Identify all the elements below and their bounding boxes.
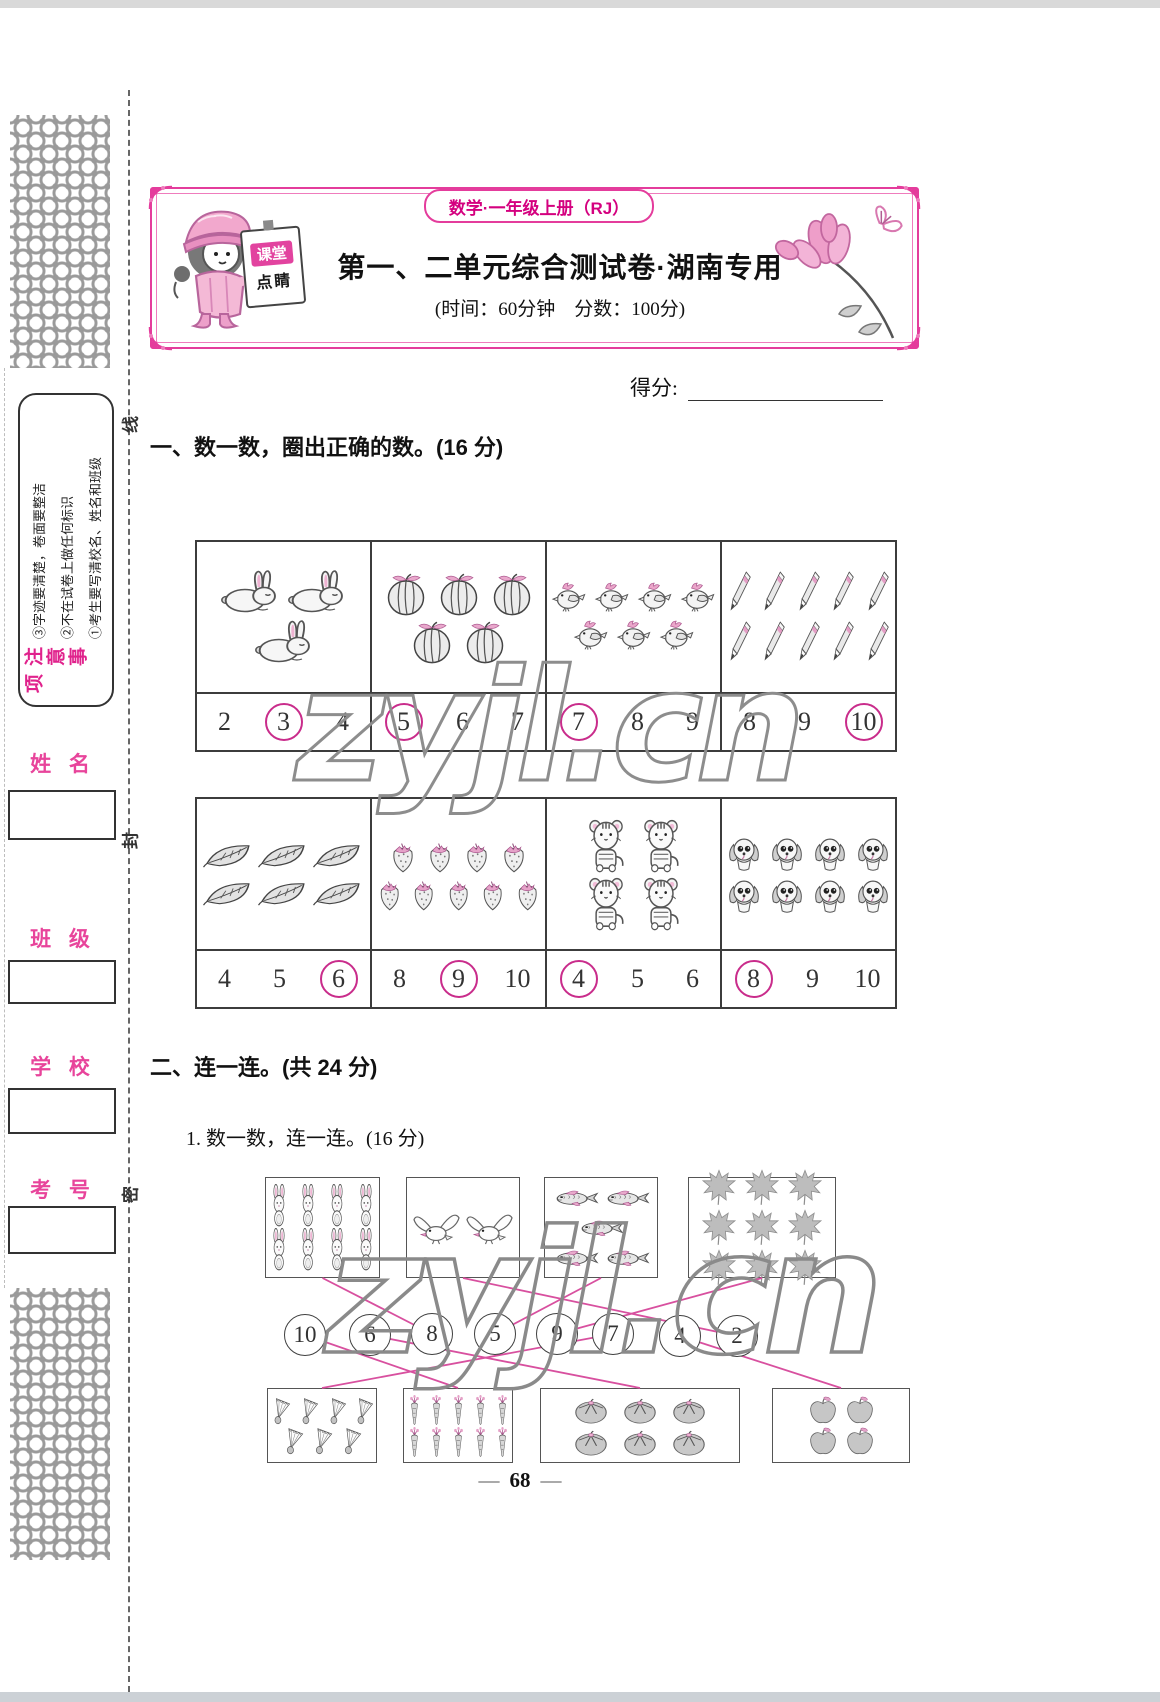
pencil-icon [793, 617, 824, 667]
maple-icon [742, 1208, 782, 1248]
pencil-icon [827, 617, 858, 667]
seal-char-mi: 密 [117, 1180, 142, 1210]
q1-grid-row1: 2345677898910 [195, 540, 897, 752]
tiger-icon [580, 816, 632, 874]
persimmon-icon [666, 1394, 712, 1426]
carrot-icon [427, 1426, 446, 1458]
connection-line [680, 1336, 841, 1388]
page-footer: —68— [420, 1468, 620, 1493]
strawberry-icon-group [374, 836, 543, 912]
watermelon-icon [487, 569, 537, 617]
persimmon-icon [568, 1426, 614, 1458]
exam-number-field-box[interactable] [8, 1206, 116, 1254]
apple-icon [806, 1426, 840, 1457]
number-circle-6: 6 [349, 1314, 391, 1356]
apple-icon [843, 1426, 877, 1457]
q2-heading: 二、连一连。(共 24 分) [150, 1050, 377, 1082]
maple-icon [699, 1248, 739, 1288]
pencil-icon [827, 567, 858, 617]
count-box-maple [688, 1177, 836, 1278]
bunny-icon [324, 1184, 350, 1228]
apple-icon-group [773, 1395, 909, 1457]
bird2-icon [412, 1205, 462, 1251]
maple-icon [785, 1208, 825, 1248]
count-box-apple [772, 1388, 910, 1463]
persimmon-icon [617, 1394, 663, 1426]
leaf-icon [258, 836, 310, 874]
pencil-icon [758, 567, 789, 617]
apple-icon [806, 1395, 840, 1426]
tiger-icon-group [549, 816, 718, 932]
q1r1-picture-cell-rabbit [196, 541, 371, 693]
bird2-icon [465, 1205, 515, 1251]
circled-answer: 5 [385, 703, 423, 741]
carrot-icon [471, 1426, 490, 1458]
circled-answer: 10 [845, 703, 883, 741]
pencil-icon [724, 617, 755, 667]
number-option: 4 [210, 964, 240, 994]
strawberry-icon [374, 874, 405, 912]
circled-answer: 3 [265, 703, 303, 741]
page-number: 68 [510, 1468, 531, 1492]
shuttlecock-icon [309, 1426, 335, 1456]
maple-icon [742, 1168, 782, 1208]
pencil-icon [862, 567, 893, 617]
exam-notice-box: 注意事项 ①考生要写清校名、姓名和班级 ②不在试卷上做任何标识 ③字迹要清楚，卷… [18, 393, 114, 707]
maple-icon [699, 1208, 739, 1248]
dog-icon [853, 874, 893, 916]
persimmon-icon-group [541, 1394, 739, 1458]
carrot-icon [405, 1426, 424, 1458]
footer-dash: — [469, 1468, 510, 1492]
circled-answer: 9 [440, 960, 478, 998]
strawberry-icon [497, 836, 531, 874]
shuttlecock-icon [296, 1396, 321, 1426]
page-top-edge [0, 0, 1160, 8]
leaf-icon [313, 874, 365, 912]
number-option: 9 [790, 707, 820, 737]
q1r2-options-cell-tiger: 456 [546, 950, 721, 1008]
bunny-icon [353, 1184, 379, 1228]
q1r1-options-cell-bird: 789 [546, 693, 721, 751]
bunny-icon-group [266, 1184, 379, 1272]
tiger-icon [635, 874, 687, 932]
school-field-box[interactable] [8, 1088, 116, 1134]
leaf-icon [313, 836, 365, 874]
rabbit-icon-group [199, 567, 368, 667]
maple-icon [785, 1248, 825, 1288]
dog-icon [767, 832, 807, 874]
q1r1-picture-cell-watermelon [371, 541, 546, 693]
number-option: 10 [503, 964, 533, 994]
leaf-icon-group [199, 836, 368, 912]
shuttlecock-icon [280, 1426, 306, 1456]
q1r1-options-cell-watermelon: 567 [371, 693, 546, 751]
number-option: 6 [678, 964, 708, 994]
pencil-icon [793, 567, 824, 617]
pencil-icon [862, 617, 893, 667]
bird-icon [678, 579, 718, 617]
bird-icon [614, 617, 654, 655]
persimmon-icon [617, 1426, 663, 1458]
school-field-label: 学 校 [18, 1051, 108, 1081]
maple-icon [742, 1248, 782, 1288]
q2-sub-heading: 1. 数一数，连一连。(16 分) [186, 1122, 424, 1151]
fish-icon [603, 1243, 651, 1273]
bunny-icon [266, 1228, 292, 1272]
pencil-icon [758, 617, 789, 667]
name-field-box[interactable] [8, 790, 116, 840]
carrot-icon-group [404, 1394, 512, 1458]
shuttlecock-icon [268, 1396, 293, 1426]
dog-icon [724, 832, 764, 874]
number-option: 6 [448, 707, 478, 737]
number-option: 8 [385, 964, 415, 994]
count-box-carrot [403, 1388, 513, 1463]
q1-grid-row2: 45689104568910 [195, 797, 897, 1009]
number-option: 5 [265, 964, 295, 994]
circled-answer: 7 [560, 703, 598, 741]
leaf-icon [203, 874, 255, 912]
strawberry-icon [423, 836, 457, 874]
bird2-icon-group [407, 1205, 519, 1251]
lattice-pattern-top [10, 115, 110, 368]
q1r1-options-cell-rabbit: 234 [196, 693, 371, 751]
apple-icon [843, 1395, 877, 1426]
class-field-label: 班 级 [18, 923, 108, 953]
notice-title: 注意事项 [24, 645, 108, 699]
carrot-icon [493, 1426, 512, 1458]
sign-board: 课堂 点睛 [240, 226, 307, 309]
q1r1-picture-cell-bird [546, 541, 721, 693]
dog-icon [810, 832, 850, 874]
persimmon-icon [568, 1394, 614, 1426]
carrot-icon [493, 1394, 512, 1426]
number-option: 7 [503, 707, 533, 737]
dog-icon-group [724, 832, 893, 916]
name-field-label: 姓 名 [18, 748, 108, 778]
pencil-icon [724, 567, 755, 617]
bunny-icon [295, 1228, 321, 1272]
strawberry-icon [512, 874, 543, 912]
watermelon-icon [407, 617, 457, 665]
bunny-icon [353, 1228, 379, 1272]
q1r2-picture-cell-leaf [196, 798, 371, 950]
maple-icon [699, 1168, 739, 1208]
leaf-icon [258, 874, 310, 912]
number-option: 2 [210, 707, 240, 737]
exam-number-field-label: 考 号 [18, 1174, 108, 1204]
sign-top-label: 课堂 [250, 240, 294, 267]
rabbit-icon [218, 567, 282, 617]
number-option: 8 [735, 707, 765, 737]
count-box-persimmon [540, 1388, 740, 1463]
notice-item-2: ②不在试卷上做任何标识 [57, 401, 76, 639]
bunny-icon [295, 1184, 321, 1228]
persimmon-icon [666, 1426, 712, 1458]
count-box-bunny [265, 1177, 380, 1278]
strawberry-icon [408, 874, 439, 912]
rabbit-icon [252, 617, 316, 667]
number-circle-10: 10 [284, 1314, 326, 1356]
q1r2-picture-cell-dog [721, 798, 896, 950]
number-circle-7: 7 [592, 1313, 634, 1355]
q1r2-picture-cell-tiger [546, 798, 721, 950]
bird-icon [549, 579, 589, 617]
number-circle-8: 8 [411, 1313, 453, 1355]
number-circle-9: 9 [536, 1313, 578, 1355]
shuttlecock-icon [351, 1396, 376, 1426]
bird-icon [657, 617, 697, 655]
seal-char-xian: 线 [117, 410, 142, 440]
carrot-icon [449, 1426, 468, 1458]
number-option: 10 [853, 964, 883, 994]
carrot-icon [405, 1394, 424, 1426]
shuttlecock-icon [338, 1426, 364, 1456]
bird-icon [571, 617, 611, 655]
score-label: 得分: [630, 372, 678, 402]
fish-icon [577, 1213, 625, 1243]
footer-dash: — [531, 1468, 572, 1492]
fish-icon [603, 1183, 651, 1213]
number-option: 4 [328, 707, 358, 737]
q1-heading: 一、数一数，圈出正确的数。(16 分) [150, 430, 503, 462]
time-score-meta: (时间：60分钟 分数：100分) [300, 294, 820, 321]
fish-icon-group [545, 1183, 657, 1273]
fish-icon [552, 1183, 600, 1213]
number-circle-5: 5 [474, 1313, 516, 1355]
strawberry-icon [477, 874, 508, 912]
page-bottom-edge [0, 1692, 1160, 1702]
number-circle-2: 2 [716, 1315, 758, 1357]
watermelon-icon [381, 569, 431, 617]
count-box-bird2 [406, 1177, 520, 1278]
circled-answer: 8 [735, 960, 773, 998]
strawberry-icon [386, 836, 420, 874]
count-box-fish [544, 1177, 658, 1278]
q1r1-picture-cell-pencil [721, 541, 896, 693]
count-box-shuttlecock [267, 1388, 377, 1463]
bird-icon [635, 579, 675, 617]
bunny-icon [324, 1228, 350, 1272]
leaf-icon [203, 836, 255, 874]
q1r2-picture-cell-strawberry [371, 798, 546, 950]
paper-title: 第一、二单元综合测试卷·湖南专用 [300, 246, 820, 286]
carrot-icon [427, 1394, 446, 1426]
dog-icon [767, 874, 807, 916]
watermelon-icon [460, 617, 510, 665]
number-option: 8 [623, 707, 653, 737]
number-option: 9 [678, 707, 708, 737]
carrot-icon [449, 1394, 468, 1426]
dog-icon [853, 832, 893, 874]
watermelon-icon-group [374, 569, 543, 665]
seal-dashed-line [128, 90, 130, 1692]
number-option: 9 [798, 964, 828, 994]
dog-icon [810, 874, 850, 916]
notice-items: ①考生要写清校名、姓名和班级 ②不在试卷上做任何标识 ③字迹要清楚，卷面要整洁 [24, 401, 108, 639]
q1r2-options-cell-leaf: 456 [196, 950, 371, 1008]
q1r2-options-cell-strawberry: 8910 [371, 950, 546, 1008]
q1r1-options-cell-pencil: 8910 [721, 693, 896, 751]
rabbit-icon [285, 567, 349, 617]
sign-bottom-label: 点睛 [255, 266, 293, 293]
edge-dashed-line [4, 368, 5, 1288]
bird-icon-group [549, 579, 718, 655]
seal-char-feng: 封 [117, 826, 142, 856]
shuttlecock-icon-group [268, 1396, 376, 1456]
bird-icon [592, 579, 632, 617]
score-blank[interactable] [688, 370, 883, 401]
tiger-icon [580, 874, 632, 932]
number-option: 5 [623, 964, 653, 994]
strawberry-icon [443, 874, 474, 912]
bunny-icon [266, 1184, 292, 1228]
tiger-icon [635, 816, 687, 874]
number-circle-4: 4 [659, 1315, 701, 1357]
notice-item-1: ①考生要写清校名、姓名和班级 [85, 401, 104, 639]
q1r2-options-cell-dog: 8910 [721, 950, 896, 1008]
circled-answer: 4 [560, 960, 598, 998]
notice-item-3: ③字迹要清楚，卷面要整洁 [29, 401, 48, 639]
class-field-box[interactable] [8, 960, 116, 1004]
maple-icon-group [689, 1168, 835, 1288]
shuttlecock-icon [324, 1396, 349, 1426]
book-badge: 数学·一年级上册（RJ） [424, 189, 654, 223]
test-paper-page: 线 封 密 注意事项 ①考生要写清校名、姓名和班级 ②不在试卷上做任何标识 ③字… [0, 0, 1160, 1702]
carrot-icon [471, 1394, 490, 1426]
circled-answer: 6 [320, 960, 358, 998]
fish-icon [552, 1243, 600, 1273]
pencil-icon-group [724, 567, 893, 667]
strawberry-icon [460, 836, 494, 874]
lattice-pattern-bottom [10, 1288, 110, 1560]
watermelon-icon [434, 569, 484, 617]
dog-icon [724, 874, 764, 916]
maple-icon [785, 1168, 825, 1208]
